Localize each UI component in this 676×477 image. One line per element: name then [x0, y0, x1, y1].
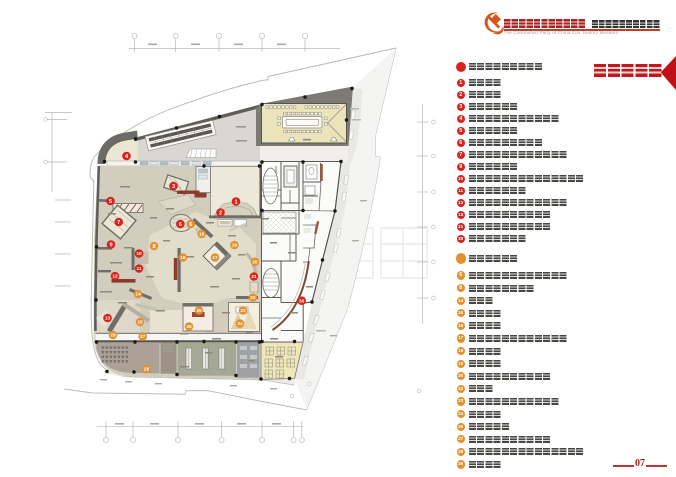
svg-text:11: 11 — [136, 266, 141, 272]
svg-text:2: 2 — [219, 211, 222, 217]
svg-text:19: 19 — [232, 243, 238, 249]
svg-text:16: 16 — [180, 255, 186, 261]
svg-text:13: 13 — [105, 316, 111, 322]
svg-text:6: 6 — [179, 222, 182, 228]
svg-text:15: 15 — [137, 320, 143, 326]
svg-text:7: 7 — [117, 220, 120, 226]
svg-text:3: 3 — [172, 184, 175, 190]
svg-text:25: 25 — [196, 308, 202, 314]
svg-text:23: 23 — [240, 308, 246, 314]
svg-text:28: 28 — [144, 367, 150, 373]
svg-text:14: 14 — [135, 292, 141, 298]
svg-text:18: 18 — [199, 232, 205, 238]
svg-text:17: 17 — [212, 255, 218, 261]
svg-text:21: 21 — [251, 274, 257, 280]
svg-text:5: 5 — [109, 199, 112, 205]
svg-text:8: 8 — [152, 244, 155, 250]
svg-text:9: 9 — [109, 243, 112, 249]
svg-text:26: 26 — [186, 324, 192, 330]
svg-text:10: 10 — [136, 251, 142, 257]
svg-text:29: 29 — [110, 333, 116, 339]
svg-text:6: 6 — [189, 222, 192, 228]
svg-text:27: 27 — [140, 334, 146, 340]
svg-text:20: 20 — [252, 259, 258, 265]
svg-text:12: 12 — [112, 274, 118, 280]
svg-text:30: 30 — [299, 298, 305, 304]
svg-text:24: 24 — [237, 321, 243, 327]
svg-text:1: 1 — [234, 200, 237, 206]
svg-text:22: 22 — [250, 295, 256, 301]
